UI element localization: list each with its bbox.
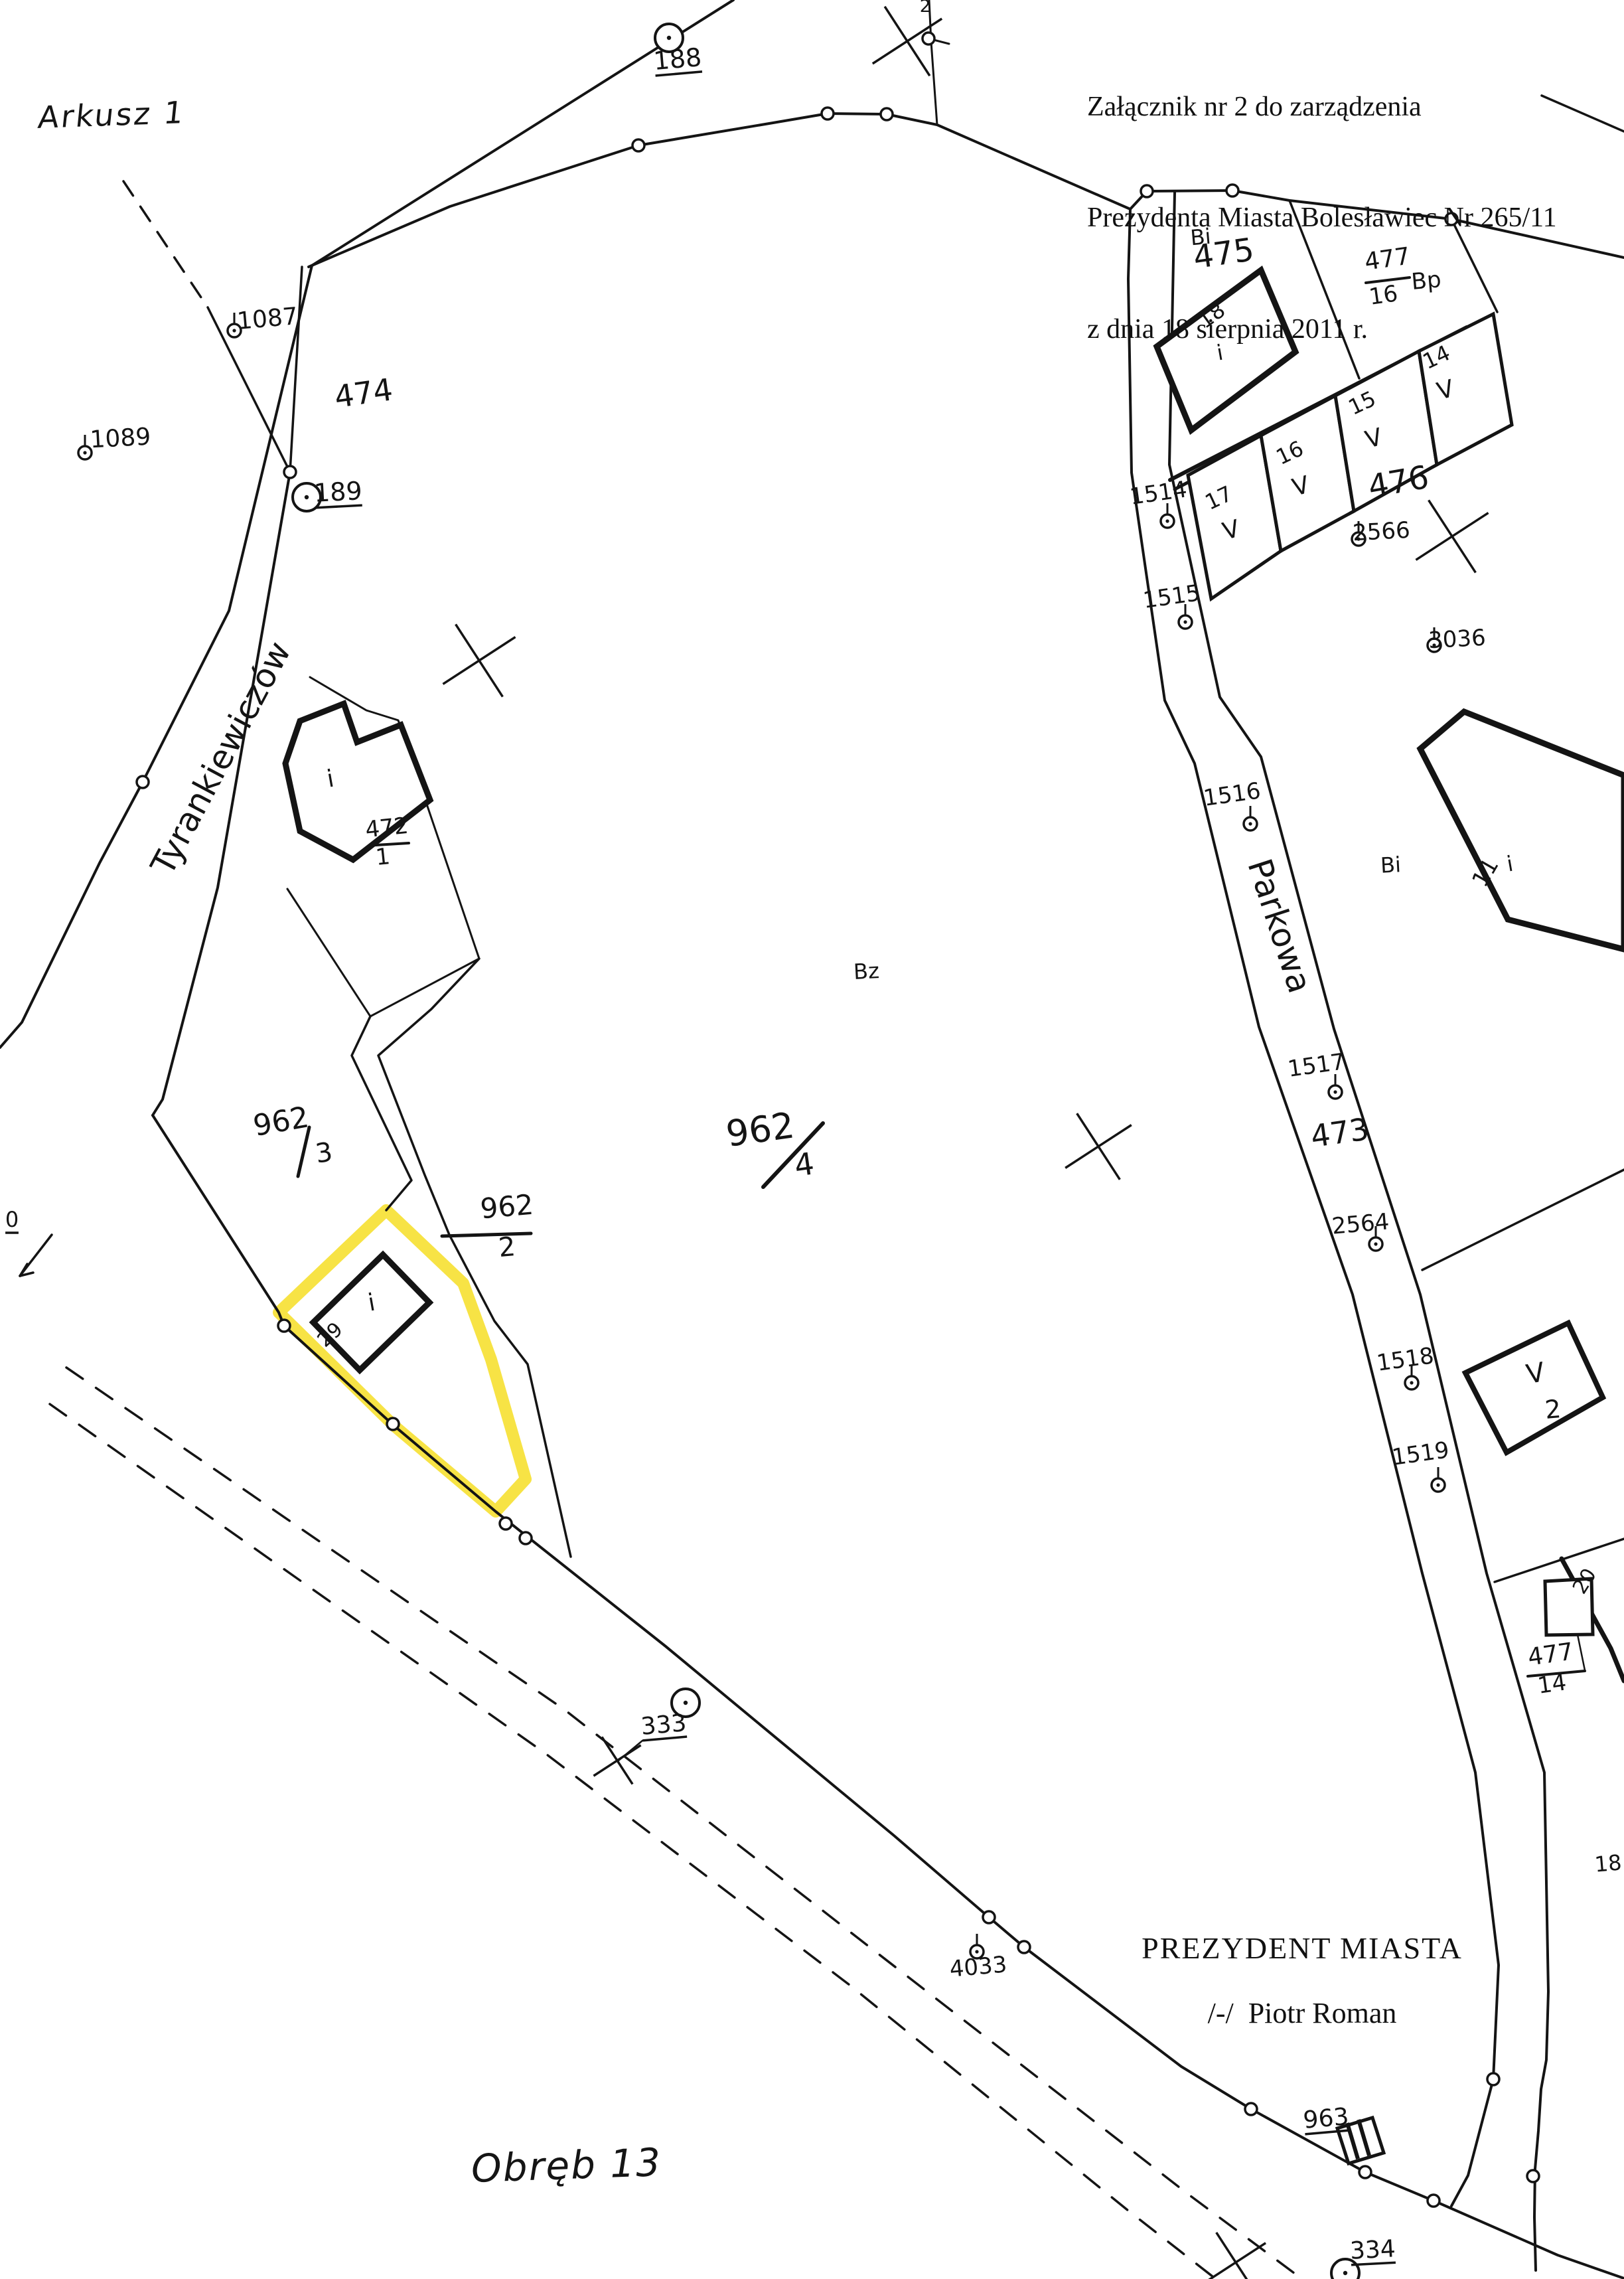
survey-point-1519-dot (1436, 1483, 1439, 1486)
boundary-vertex-circle (284, 466, 296, 478)
boundary-vertex-circle (1018, 1941, 1030, 1953)
boundary-vertex-circle (387, 1418, 399, 1430)
sheet-label: Arkusz 1 (37, 94, 187, 135)
map-label-963: 963 (1302, 2103, 1350, 2134)
boundary-vertex-circle (1359, 2166, 1371, 2178)
cross-mark-arm (1416, 500, 1488, 572)
map-label-2: 2 (920, 0, 931, 17)
boundary-vertex-circle (1527, 2170, 1539, 2182)
survey-point-189-dot (305, 495, 309, 499)
map-label-1517: 1517 (1286, 1048, 1347, 1083)
survey-point-334-dot (1343, 2271, 1347, 2275)
map-label-0: 0 (5, 1207, 19, 1232)
cross-mark (1065, 1113, 1132, 1180)
boundary-vertex-circle (822, 108, 834, 119)
map-label-1087: 1087 (236, 303, 299, 335)
parcel-962-1-highlight (279, 1210, 526, 1512)
boundary-vertex-circle (278, 1320, 290, 1332)
line-top-vertical (929, 0, 937, 125)
road-dashed-north (66, 1368, 1302, 2279)
page-root: { "page":{"width":2447,"height":3433,"in… (0, 0, 1624, 2279)
survey-point-1518-dot (1410, 1381, 1413, 1384)
map-label-474: 474 (332, 371, 395, 415)
ordinance-note: Załącznik nr 2 do zarządzenia Prezydenta… (1087, 15, 1624, 386)
map-label-1514: 1514 (1128, 476, 1189, 511)
map-label-2: 2 (497, 1231, 516, 1263)
map-label-4033: 4033 (948, 1951, 1008, 1982)
map-label-334: 334 (1349, 2235, 1396, 2265)
building-no11 (1420, 712, 1624, 949)
map-label-473: 473 (1309, 1111, 1371, 1154)
map-label-tyrankiewiczów: Tyrankiewiczów (143, 635, 299, 882)
boundary-vertex-circle (137, 776, 149, 788)
map-label-1: 1 (374, 843, 392, 871)
survey-point-2564-dot (1374, 1242, 1377, 1245)
map-label-189: 189 (313, 476, 363, 508)
cross-mark-arm (443, 624, 515, 696)
survey-point-1515-dot (1183, 620, 1187, 623)
map-label-472: 472 (364, 813, 409, 844)
map-label-962: 962 (723, 1104, 797, 1155)
map-label-3: 3 (313, 1137, 334, 1170)
cross-mark-arm (1065, 1113, 1132, 1180)
cross-mark (443, 624, 515, 696)
boundary-vertex-circle (1245, 2103, 1257, 2115)
map-label-188: 188 (652, 42, 703, 76)
map-label-1516: 1516 (1202, 777, 1262, 812)
boundary-vertex-circle (1487, 2073, 1499, 2085)
fence-mid-right (1422, 1170, 1624, 1270)
boundary-vertex-circle (632, 139, 644, 151)
map-label-962: 962 (479, 1188, 535, 1225)
signature-block: PREZYDENT MIASTA /-/ Piotr Roman (1110, 1907, 1495, 2042)
boundary-vertex-circle (983, 1911, 995, 1923)
ordinance-note-line-3: z dnia 18 sierpnia 2011 r. (1087, 311, 1624, 349)
fence-v2-south (1495, 1539, 1624, 1582)
map-label-1519: 1519 (1390, 1437, 1451, 1471)
district-label: Obręb 13 (471, 2140, 662, 2191)
ordinance-note-line-2: Prezydenta Miasta Bolesławiec Nr 265/11 (1087, 200, 1624, 237)
boundary-vertex-circle (500, 1518, 512, 1530)
map-label-333: 333 (640, 1709, 688, 1741)
map-label-bi: Bi (1380, 852, 1402, 878)
boundary-vertex-circle (1428, 2195, 1439, 2207)
map-label-1518: 1518 (1375, 1342, 1436, 1377)
cross-mark-arm (1206, 2233, 1266, 2279)
fraction-bar-962-2 (442, 1233, 531, 1236)
cross-mark-arm (1206, 2233, 1266, 2279)
signature-title: PREZYDENT MIASTA (1110, 1930, 1495, 1966)
cross-mark (593, 1737, 640, 1784)
survey-point-188-dot (667, 36, 671, 40)
corridor-962-2-west (352, 1016, 411, 1210)
survey-point-1516-dot (1248, 822, 1252, 825)
signature-name: /-/ Piotr Roman (1110, 1996, 1495, 2030)
map-label-4: 4 (792, 1145, 817, 1184)
map-label-962: 962 (251, 1100, 312, 1143)
survey-point-1089-dot (83, 451, 86, 454)
corridor-962-2-east (378, 959, 571, 1557)
map-label-3036: 3036 (1428, 625, 1487, 654)
cross-mark (1206, 2233, 1266, 2279)
survey-point-1517-dot (1333, 1090, 1337, 1093)
cross-mark (1416, 500, 1488, 572)
boundary-west-vertical (290, 267, 302, 472)
map-label-2564: 2564 (1331, 1208, 1390, 1239)
cross-mark-arm (593, 1737, 640, 1784)
survey-point-333-dot (684, 1701, 688, 1705)
map-label-2566: 2566 (1352, 517, 1411, 546)
ordinance-note-line-1: Załącznik nr 2 do zarządzenia (1087, 89, 1624, 126)
survey-point-4033-dot (975, 1950, 978, 1953)
fence-topleft-dashed (123, 181, 208, 307)
survey-point-1087-dot (232, 329, 236, 332)
boundary-vertex-circle (881, 108, 893, 120)
map-label-bz: Bz (853, 958, 880, 984)
survey-point-1514-dot (1165, 519, 1169, 522)
map-label-1089: 1089 (90, 424, 152, 454)
map-label-1515: 1515 (1142, 580, 1202, 614)
boundary-vertex-circle (520, 1532, 532, 1544)
boundary-vertex-circle (923, 33, 934, 44)
map-label-14: 14 (1536, 1669, 1568, 1699)
map-label-18: 18 (1593, 1849, 1623, 1877)
map-label-477: 477 (1526, 1638, 1576, 1672)
map-label-2: 2 (1544, 1394, 1562, 1425)
